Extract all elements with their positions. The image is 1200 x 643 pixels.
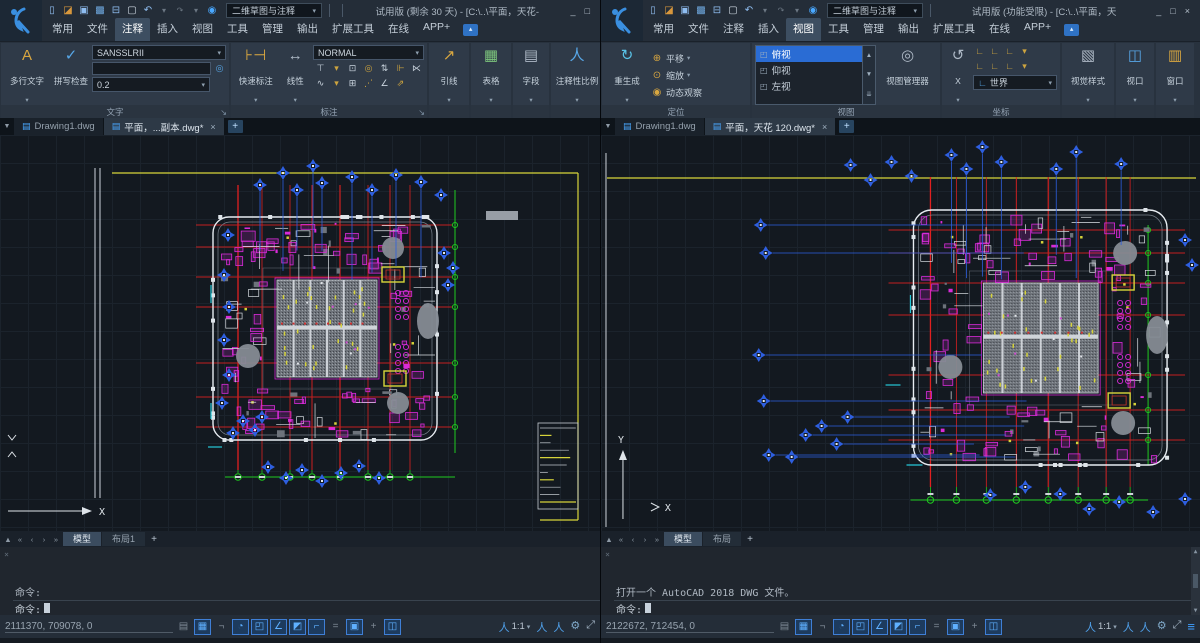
close-tab-icon[interactable]: × — [210, 122, 215, 132]
tolerance-icon[interactable]: ⊞ — [345, 77, 360, 90]
find-text-icon[interactable]: ◎ — [213, 63, 226, 74]
ribbon-tab[interactable]: 输出 — [891, 18, 926, 41]
ucs-world-icon: ∟ — [978, 78, 987, 88]
window-edge — [601, 638, 1200, 643]
command-history-line: 命令: — [15, 587, 598, 600]
close-tab-icon[interactable]: × — [822, 122, 827, 132]
chevron-down-icon: ▾ — [312, 7, 316, 15]
lineweight-toggle[interactable]: = — [327, 619, 344, 635]
lineweight-toggle[interactable]: = — [928, 619, 945, 635]
chevron-down-icon: ▾ — [1048, 79, 1052, 87]
view-list-scrollbar: ▲▼⇊ — [863, 45, 876, 105]
ribbon-tab[interactable]: APP+ — [1017, 18, 1058, 41]
table-panel: ▦ 表格 ▾ — [471, 43, 511, 118]
quickprop-toggle[interactable]: ◫ — [384, 619, 401, 635]
gstarcad-logo-icon — [609, 6, 635, 36]
mtext-icon: A — [22, 47, 32, 66]
first-layout-icon[interactable]: « — [14, 535, 26, 544]
ribbon-tab[interactable]: 视图 — [185, 18, 220, 41]
svg-text:X: X — [665, 503, 671, 514]
annotation-visibility-icon[interactable]: 人 — [536, 619, 547, 635]
polar-toggle[interactable]: ◔ — [833, 619, 850, 635]
quick-access-toolbar: ▯◪▣▩⊟▢↶▾↷▾◉ — [647, 5, 819, 17]
scroll-up-icon[interactable]: ▲ — [863, 46, 875, 65]
text-cursor — [645, 603, 651, 613]
linear-dimension-icon: ↔ — [288, 47, 303, 66]
status-bar: 2111370, 709078, 0 ▤▦¬◔◰∠◩⌐=▣+◫ 人 1:1 ▾ … — [0, 615, 600, 638]
text-style-combo[interactable]: SANSSLRII ▾ — [92, 45, 226, 60]
ucs-object-icon[interactable]: ∟ — [988, 60, 1001, 73]
jog-line-icon[interactable]: ∿ — [313, 77, 328, 90]
new-tab-button[interactable]: + — [839, 120, 854, 133]
ribbon-panel-toggle-icon[interactable]: ▴ — [1064, 24, 1079, 36]
coordinates-readout: 2111370, 709078, 0 — [5, 621, 173, 633]
print-icon[interactable]: ⊟ — [711, 5, 723, 17]
command-prompt[interactable]: 命令: — [614, 600, 1191, 615]
ribbon-tab[interactable]: 常用 — [646, 18, 681, 41]
window-buttons: _□ — [567, 6, 596, 16]
viewport-icon: ◫ — [1128, 47, 1142, 66]
model-paper-toggle[interactable]: ▤ — [175, 619, 192, 635]
ucs-view-icon[interactable]: ∟ — [973, 60, 986, 73]
command-line-panel: × 命令:命令:命令:命令: C:\Users\Gstar\AppData\Lo… — [0, 547, 600, 615]
ribbon-tab[interactable]: 文件 — [681, 18, 716, 41]
layout-collapse-icon[interactable]: ▲ — [603, 535, 615, 544]
gstarcad-logo-icon — [8, 6, 34, 36]
scroll-down-icon[interactable]: ▼ — [863, 65, 875, 84]
caret-icon[interactable]: ▾ — [190, 5, 202, 17]
maximize-button[interactable]: □ — [585, 6, 590, 16]
ribbon-tab[interactable]: 扩展工具 — [926, 18, 982, 41]
workspace-dropdown[interactable]: 二维草图与注释 ▾ — [226, 3, 322, 18]
save-as-icon[interactable]: ▩ — [94, 5, 106, 17]
dim-style-combo[interactable]: NORMAL ▾ — [313, 45, 424, 60]
chevron-down-icon: ▾ — [25, 97, 28, 104]
layout-tab[interactable]: 模型 — [63, 532, 101, 546]
minimize-button[interactable]: _ — [571, 6, 576, 16]
annotation-scale-value: 1:1 — [1098, 621, 1111, 632]
svg-text:Y: Y — [618, 435, 624, 446]
caret-icon[interactable]: ▾ — [329, 77, 344, 90]
text-panel: A 多行文字 ▾ ✓ 拼写检查 SANSSLRII ▾ ◎ — [1, 43, 229, 118]
view-cube-icon: ◰ — [760, 50, 768, 59]
drawing-canvas[interactable]: YX — [601, 135, 1200, 531]
angle-snap-toggle[interactable]: ∠ — [270, 619, 287, 635]
dwg-file-icon: ▤ — [623, 121, 632, 132]
prev-layout-icon[interactable]: ‹ — [26, 535, 38, 544]
regen-button[interactable]: ↻ 重生成 ▾ — [605, 45, 649, 105]
osnap-toggle[interactable]: ◰ — [852, 619, 869, 635]
floor-plan-drawing: YX — [601, 135, 1200, 531]
fullscreen-icon[interactable]: ⤢ — [1173, 619, 1182, 635]
baseline-dim-icon[interactable]: ⊤ — [313, 62, 328, 75]
mtext-button[interactable]: A 多行文字 ▾ — [4, 45, 50, 105]
leader-button[interactable]: ↗ 引线 ▾ — [432, 45, 466, 105]
window-title: 试用版 (功能受限) - [C:\..\平面，天 — [938, 4, 1150, 18]
view-manager-button[interactable]: ◎ 视图管理器 — [878, 45, 937, 105]
ribbon-tab[interactable]: 文件 — [80, 18, 115, 41]
coordinates-readout: 2122672, 712454, 0 — [606, 621, 774, 633]
ducs-toggle[interactable]: ⌐ — [308, 619, 325, 635]
ribbon-tab[interactable]: 工具 — [821, 18, 856, 41]
chevron-down-icon: ▾ — [1113, 623, 1117, 631]
workspace-label: 二维草图与注释 — [232, 4, 295, 17]
last-layout-icon[interactable]: » — [651, 535, 663, 544]
save-as-icon[interactable]: ▩ — [695, 5, 707, 17]
chevron-down-icon: ▾ — [201, 81, 205, 89]
annotation-scale-value: 1:1 — [512, 621, 525, 632]
workspace-dropdown[interactable]: 二维草图与注释 ▾ — [827, 3, 923, 18]
drawing-canvas[interactable]: X — [0, 135, 600, 531]
nav-row-icon: ⊙ — [651, 70, 663, 81]
otrack-toggle[interactable]: ◩ — [890, 619, 907, 635]
ortho-toggle[interactable]: ¬ — [213, 619, 230, 635]
first-layout-icon[interactable]: « — [615, 535, 627, 544]
otrack-toggle[interactable]: ◩ — [289, 619, 306, 635]
chevron-down-icon: ▾ — [913, 7, 917, 15]
ribbon-tab[interactable]: 管理 — [856, 18, 891, 41]
save-icon[interactable]: ▣ — [78, 5, 90, 17]
titlebar: ▯◪▣▩⊟▢↶▾↷▾◉ 二维草图与注释 ▾ 试用版 (功能受限) - [C:\.… — [601, 0, 1200, 42]
caret-icon[interactable]: ▾ — [1018, 45, 1031, 58]
table-icon: ▦ — [484, 47, 498, 66]
ortho-toggle[interactable]: ¬ — [814, 619, 831, 635]
view-list-item[interactable]: ◰ 俯视 — [756, 46, 862, 62]
view-cube-icon: ◰ — [760, 66, 768, 75]
ducs-toggle[interactable]: ⌐ — [909, 619, 926, 635]
command-prompt[interactable]: 命令: — [13, 600, 600, 615]
window-panel: ▥ 窗口 ▾ — [1156, 43, 1194, 118]
dyninput-toggle[interactable]: ▣ — [346, 619, 363, 635]
help-icon[interactable]: ◉ — [206, 5, 218, 17]
ucs-z-icon[interactable]: ∟ — [1003, 45, 1016, 58]
ribbon-tab[interactable]: 常用 — [45, 18, 80, 41]
layout-collapse-icon[interactable]: ▲ — [2, 535, 14, 544]
text-panel-footer[interactable]: 文字 ↘ — [1, 105, 229, 118]
navigate-panel-footer[interactable]: 定位 — [602, 105, 750, 118]
document-tab[interactable]: ▤ Drawing1.dwg × — [615, 118, 704, 135]
next-layout-icon[interactable]: › — [38, 535, 50, 544]
field-button[interactable]: ▤ 字段 ▾ — [516, 45, 546, 105]
oblique-icon[interactable]: ⋰ — [361, 77, 376, 90]
last-layout-icon[interactable]: » — [50, 535, 62, 544]
save-icon[interactable]: ▣ — [679, 5, 691, 17]
visual-style-button[interactable]: ▧ 视觉样式 ▾ — [1065, 45, 1111, 105]
ribbon-tab[interactable]: 插入 — [751, 18, 786, 41]
angle-dim-icon[interactable]: ∠ — [377, 77, 392, 90]
chevron-down-icon: ▾ — [415, 49, 419, 57]
viewport-button[interactable]: ◫ 视口 ▾ — [1119, 45, 1151, 105]
layout-tab-bar: ▲«‹›» 模型布局 + — [601, 531, 1200, 547]
workspace-gear-icon[interactable]: ⚙ — [570, 619, 580, 635]
document-tab-bar: ▼ ▤ Drawing1.dwg × ▤ 平面，天花 120.dwg* × + — [601, 118, 1200, 135]
dialog-launcher-icon[interactable]: ↘ — [220, 108, 227, 117]
views-panel: ◰ 俯视 ◰ 仰视 ◰ 左视 — [752, 43, 940, 118]
inspect-dim-icon[interactable]: ⋉ — [409, 62, 424, 75]
ucs-icon[interactable]: ∟ — [973, 45, 986, 58]
command-close-icon[interactable]: × — [601, 547, 614, 615]
quick-dimension-button[interactable]: ⊦⊣ 快速标注 ▾ — [234, 45, 277, 105]
dwg-file-icon: ▤ — [713, 121, 722, 132]
command-close-icon[interactable]: × — [0, 547, 13, 615]
app-logo — [601, 0, 643, 41]
window-tools-icon: ▥ — [1168, 47, 1182, 66]
ribbon-tab[interactable]: 视图 — [786, 18, 821, 41]
command-history-line: 打开一个 AutoCAD 2018 DWG 文件。 — [616, 587, 1189, 600]
new-icon[interactable]: ▯ — [46, 5, 58, 17]
next-layout-icon[interactable]: › — [639, 535, 651, 544]
cad-window-left: ▯◪▣▩⊟▢↶▾↷▾◉ 二维草图与注释 ▾ 试用版 (剩余 30 天) - [C… — [0, 0, 600, 643]
dimension-panel-footer[interactable]: 标注 ↘ — [231, 105, 427, 118]
text-height-combo[interactable]: 0.2 ▾ — [92, 77, 210, 92]
chevron-down-icon: ▾ — [527, 623, 531, 631]
doc-tab-list-icon[interactable]: ▼ — [601, 118, 615, 135]
quick-dim-icon[interactable]: ⊡ — [345, 62, 360, 75]
anno-add-toggle[interactable]: + — [966, 619, 983, 635]
zoom-button[interactable]: ⊙ 缩放 ▾ — [651, 68, 747, 83]
regen-icon: ↻ — [621, 47, 634, 66]
orbit-button[interactable]: ◉ 动态观察 — [651, 85, 747, 100]
pan-button[interactable]: ⊕ 平移 ▾ — [651, 51, 747, 66]
scroll-up-icon[interactable]: ▲ — [1194, 548, 1198, 555]
angle-snap-toggle[interactable]: ∠ — [871, 619, 888, 635]
ribbon-annotate: A 多行文字 ▾ ✓ 拼写检查 SANSSLRII ▾ ◎ — [0, 42, 600, 118]
dimension-panel: ⊦⊣ 快速标注 ▾ ↔ 线性 ▾ NORMAL ▾ ⊤▾⊡◎⇅⊩⋉ — [231, 43, 427, 118]
ucs-world-combo[interactable]: ∟ 世界 ▾ — [973, 75, 1057, 90]
workspace-gear-icon[interactable]: ⚙ — [1157, 619, 1167, 635]
quickprop-toggle[interactable]: ◫ — [985, 619, 1002, 635]
add-layout-button[interactable]: + — [146, 534, 162, 545]
open-icon[interactable]: ◪ — [663, 5, 675, 17]
ribbon-tab[interactable]: 在线 — [982, 18, 1017, 41]
linear-dimension-button[interactable]: ↔ 线性 ▾ — [279, 45, 311, 105]
undo-icon[interactable]: ↶ — [142, 5, 154, 17]
find-text-input[interactable] — [92, 62, 211, 75]
titlebar: ▯◪▣▩⊟▢↶▾↷▾◉ 二维草图与注释 ▾ 试用版 (剩余 30 天) - [C… — [0, 0, 600, 42]
document-tab[interactable]: ▤ Drawing1.dwg × — [14, 118, 103, 135]
visual-style-icon: ▧ — [1081, 47, 1095, 66]
spellcheck-button[interactable]: ✓ 拼写检查 — [52, 45, 90, 105]
ribbon-tab[interactable]: 在线 — [381, 18, 416, 41]
field-icon: ▤ — [524, 47, 538, 66]
layout-tab[interactable]: 布局1 — [102, 532, 145, 546]
fullscreen-icon[interactable]: ⤢ — [586, 619, 595, 635]
annotation-scale-control[interactable]: 人 1:1 ▾ — [1085, 619, 1117, 635]
quick-dimension-icon: ⊦⊣ — [245, 47, 266, 66]
dyninput-toggle[interactable]: ▣ — [947, 619, 964, 635]
scroll-end-icon[interactable]: ⇊ — [863, 85, 875, 104]
ribbon-tab[interactable]: 输出 — [290, 18, 325, 41]
print-icon[interactable]: ⊟ — [110, 5, 122, 17]
annotative-scale-panel: 人 注释性比例 ▾ — [551, 43, 600, 118]
scroll-down-icon[interactable]: ▼ — [1194, 607, 1198, 614]
caret-icon[interactable]: ▾ — [759, 5, 771, 17]
break-dim-icon[interactable]: ⊩ — [393, 62, 408, 75]
ribbon-tab[interactable]: 插入 — [150, 18, 185, 41]
annotation-scale-control[interactable]: 人 1:1 ▾ — [499, 619, 531, 635]
leader-icon: ↗ — [443, 47, 456, 66]
redo-icon[interactable]: ↷ — [775, 5, 787, 17]
command-scrollbar[interactable]: ▲ ▼ — [1191, 547, 1200, 615]
minimize-button[interactable]: _ — [1156, 6, 1161, 16]
ribbon-tab[interactable]: 工具 — [220, 18, 255, 41]
nav-row-icon: ⊕ — [651, 53, 663, 64]
annotative-scale-button[interactable]: 人 注释性比例 ▾ — [554, 45, 600, 105]
viewport-panel: ◫ 视口 ▾ — [1116, 43, 1154, 118]
doc-tab-list-icon[interactable]: ▼ — [0, 118, 14, 135]
chevron-down-icon: ▾ — [217, 49, 221, 57]
coordinates-panel-footer[interactable]: 坐标 — [942, 105, 1060, 118]
window-edge — [0, 638, 600, 643]
view-list-item[interactable]: ◰ 左视 — [756, 78, 862, 94]
dwg-file-icon: ▤ — [22, 121, 31, 132]
leader-panel: ↗ 引线 ▾ — [429, 43, 469, 118]
view-manager-icon: ◎ — [901, 47, 914, 66]
close-button[interactable]: × — [1185, 6, 1190, 16]
floor-plan-drawing: X — [0, 135, 600, 531]
maximize-button[interactable]: □ — [1170, 6, 1175, 16]
coordinates-panel: ↺ X ▾ ∟∟∟▾ ∟∟∟▾ ∟ 世界 — [942, 43, 1060, 118]
anno-add-toggle[interactable]: + — [365, 619, 382, 635]
table-button[interactable]: ▦ 表格 ▾ — [474, 45, 508, 105]
layout-tab-bar: ▲«‹›» 模型布局1 + — [0, 531, 600, 547]
caret-icon[interactable]: ▾ — [791, 5, 803, 17]
view-cube-icon: ◰ — [760, 82, 768, 91]
override-icon[interactable]: ⇗ — [393, 77, 408, 90]
navigate-panel: ↻ 重生成 ▾ ⊕ 平移 ▾ ⊙ 缩放 — [602, 43, 750, 118]
ribbon-tab[interactable]: 注释 — [716, 18, 751, 41]
window-tools-button[interactable]: ▥ 窗口 ▾ — [1159, 45, 1191, 105]
ribbon-tab-bar: 常用文件注释插入视图工具管理输出扩展工具在线APP+ ▴ — [643, 19, 1200, 41]
workspace-label: 二维草图与注释 — [833, 4, 896, 17]
command-history[interactable]: 命令:命令:命令:命令: C:\Users\Gstar\AppData\Loca… — [13, 547, 600, 600]
annotation-scale-icon: 人 — [499, 619, 510, 635]
annotation-autoscale-icon[interactable]: 人 — [553, 619, 564, 635]
field-panel: ▤ 字段 ▾ — [513, 43, 549, 118]
document-tab-bar: ▼ ▤ Drawing1.dwg × ▤ 平面，...副本.dwg* × + — [0, 118, 600, 135]
annotation-autoscale-icon[interactable]: 人 — [1140, 619, 1151, 635]
redo-icon[interactable]: ↷ — [174, 5, 186, 17]
ucs-origin-icon[interactable]: ∟ — [988, 45, 1001, 58]
command-history[interactable]: 打开一个 AutoCAD 2018 DWG 文件。命令:命令:命令: — [614, 547, 1191, 600]
osnap-toggle[interactable]: ◰ — [251, 619, 268, 635]
spellcheck-icon: ✓ — [65, 47, 78, 66]
views-panel-footer[interactable]: 视图 — [752, 105, 940, 118]
dwg-file-icon: ▤ — [112, 121, 121, 132]
new-tab-button[interactable]: + — [228, 120, 243, 133]
prev-layout-icon[interactable]: ‹ — [627, 535, 639, 544]
ribbon-view: ↻ 重生成 ▾ ⊕ 平移 ▾ ⊙ 缩放 — [601, 42, 1200, 118]
select-icon[interactable]: ▢ — [727, 5, 739, 17]
ribbon-tab[interactable]: APP+ — [416, 18, 457, 41]
scrollbar-thumb[interactable] — [1193, 574, 1198, 588]
window-buttons: _□× — [1152, 6, 1196, 16]
annotation-visibility-icon[interactable]: 人 — [1123, 619, 1134, 635]
layout-tab[interactable]: 模型 — [664, 532, 702, 546]
ribbon-tab[interactable]: 管理 — [255, 18, 290, 41]
text-cursor — [44, 603, 50, 613]
add-layout-button[interactable]: + — [742, 534, 758, 545]
help-icon[interactable]: ◉ — [807, 5, 819, 17]
document-tab[interactable]: ▤ 平面，...副本.dwg* × — [104, 118, 224, 135]
polar-toggle[interactable]: ◔ — [232, 619, 249, 635]
dialog-launcher-icon[interactable]: ↘ — [418, 108, 425, 117]
view-list: ◰ 俯视 ◰ 仰视 ◰ 左视 — [755, 45, 863, 105]
cad-window-right: ▯◪▣▩⊟▢↶▾↷▾◉ 二维草图与注释 ▾ 试用版 (功能受限) - [C:\.… — [600, 0, 1200, 643]
command-line-panel: × 打开一个 AutoCAD 2018 DWG 文件。命令:命令:命令: 命令:… — [601, 547, 1200, 615]
ucs-face-icon[interactable]: ∟ — [1003, 60, 1016, 73]
grid-toggle[interactable]: ▦ — [194, 619, 211, 635]
ucs-rotate-icon: ↺ — [952, 47, 965, 66]
grid-toggle[interactable]: ▦ — [795, 619, 812, 635]
annotative-scale-icon: 人 — [569, 47, 584, 66]
document-tab[interactable]: ▤ 平面，天花 120.dwg* × — [705, 118, 836, 135]
ucs-x-button[interactable]: ↺ X ▾ — [945, 45, 971, 105]
ribbon-tab-bar: 常用文件注释插入视图工具管理输出扩展工具在线APP+ ▴ — [42, 19, 600, 41]
ribbon-panel-toggle-icon[interactable]: ▴ — [463, 24, 478, 36]
quick-access-toolbar: ▯◪▣▩⊟▢↶▾↷▾◉ — [46, 5, 218, 17]
undo-icon[interactable]: ↶ — [743, 5, 755, 17]
model-paper-toggle[interactable]: ▤ — [776, 619, 793, 635]
new-icon[interactable]: ▯ — [647, 5, 659, 17]
caret-icon[interactable]: ▾ — [329, 62, 344, 75]
nav-row-icon: ◉ — [651, 87, 663, 98]
adjust-space-icon[interactable]: ⇅ — [377, 62, 392, 75]
app-logo — [0, 0, 42, 41]
ribbon-tab[interactable]: 扩展工具 — [325, 18, 381, 41]
open-icon[interactable]: ◪ — [62, 5, 74, 17]
window-title: 试用版 (剩余 30 天) - [C:\..\平面，天花- — [350, 4, 565, 18]
svg-text:X: X — [99, 507, 105, 518]
ribbon-tab[interactable]: 注释 — [115, 18, 150, 41]
view-list-item[interactable]: ◰ 仰视 — [756, 62, 862, 78]
caret-icon[interactable]: ▾ — [1018, 60, 1031, 73]
visual-style-panel: ▧ 视觉样式 ▾ — [1062, 43, 1114, 118]
annotation-scale-icon: 人 — [1085, 619, 1096, 635]
center-mark-icon[interactable]: ◎ — [361, 62, 376, 75]
status-bar: 2122672, 712454, 0 ▤▦¬◔◰∠◩⌐=▣+◫ 人 1:1 ▾ … — [601, 615, 1200, 638]
caret-icon[interactable]: ▾ — [158, 5, 170, 17]
layout-tab[interactable]: 布局 — [703, 532, 741, 546]
select-icon[interactable]: ▢ — [126, 5, 138, 17]
statusbar-menu-icon[interactable]: ≡ — [1187, 619, 1195, 635]
